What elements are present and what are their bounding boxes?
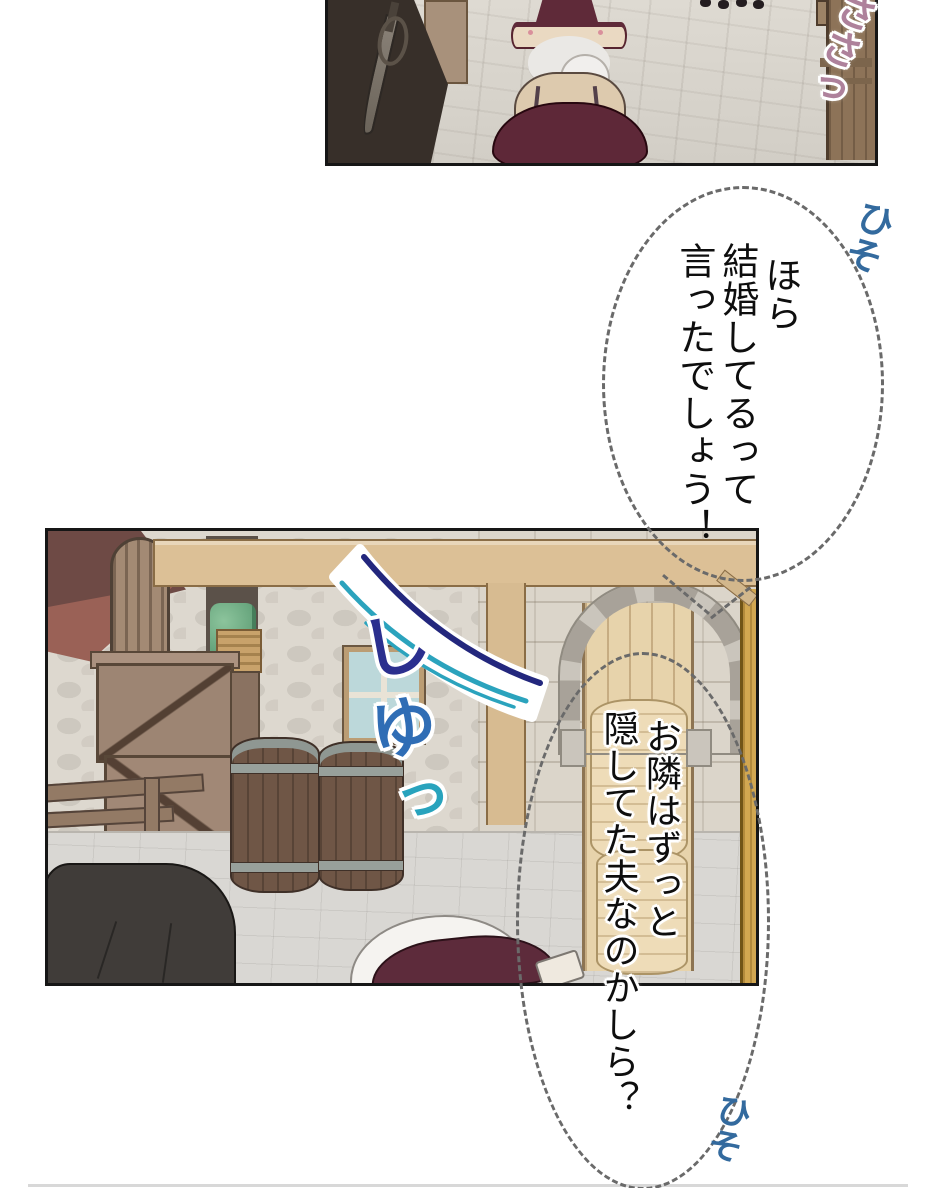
whisper-bubble-2-text: お隣はずっと 隠してた夫なのかしら？	[596, 710, 681, 1120]
hat-flower	[598, 30, 603, 35]
sfx-shu-char: っ	[391, 747, 453, 832]
next-panel-edge	[28, 1184, 908, 1187]
dialogue-line: お隣はずっと	[638, 718, 680, 1128]
manga-page: ささっ ほら 結婚してるって 言ったでしょう！ ひそ	[0, 0, 950, 1188]
passerby-silhouette	[700, 0, 711, 7]
dialogue-line: 隠してた夫なのかしら？	[596, 710, 638, 1120]
dialogue-line: 結婚してるって	[715, 242, 758, 562]
hat-flower	[528, 30, 533, 35]
whisper-bubble-1-text: ほら 結婚してるって 言ったでしょう！	[672, 242, 801, 562]
dialogue-line: 言ったでしょう！	[672, 242, 715, 562]
passerby-silhouette	[718, 0, 729, 9]
dialogue-line: ほら	[758, 256, 801, 576]
passerby-silhouette	[736, 0, 747, 7]
passerby-silhouette	[753, 0, 764, 9]
